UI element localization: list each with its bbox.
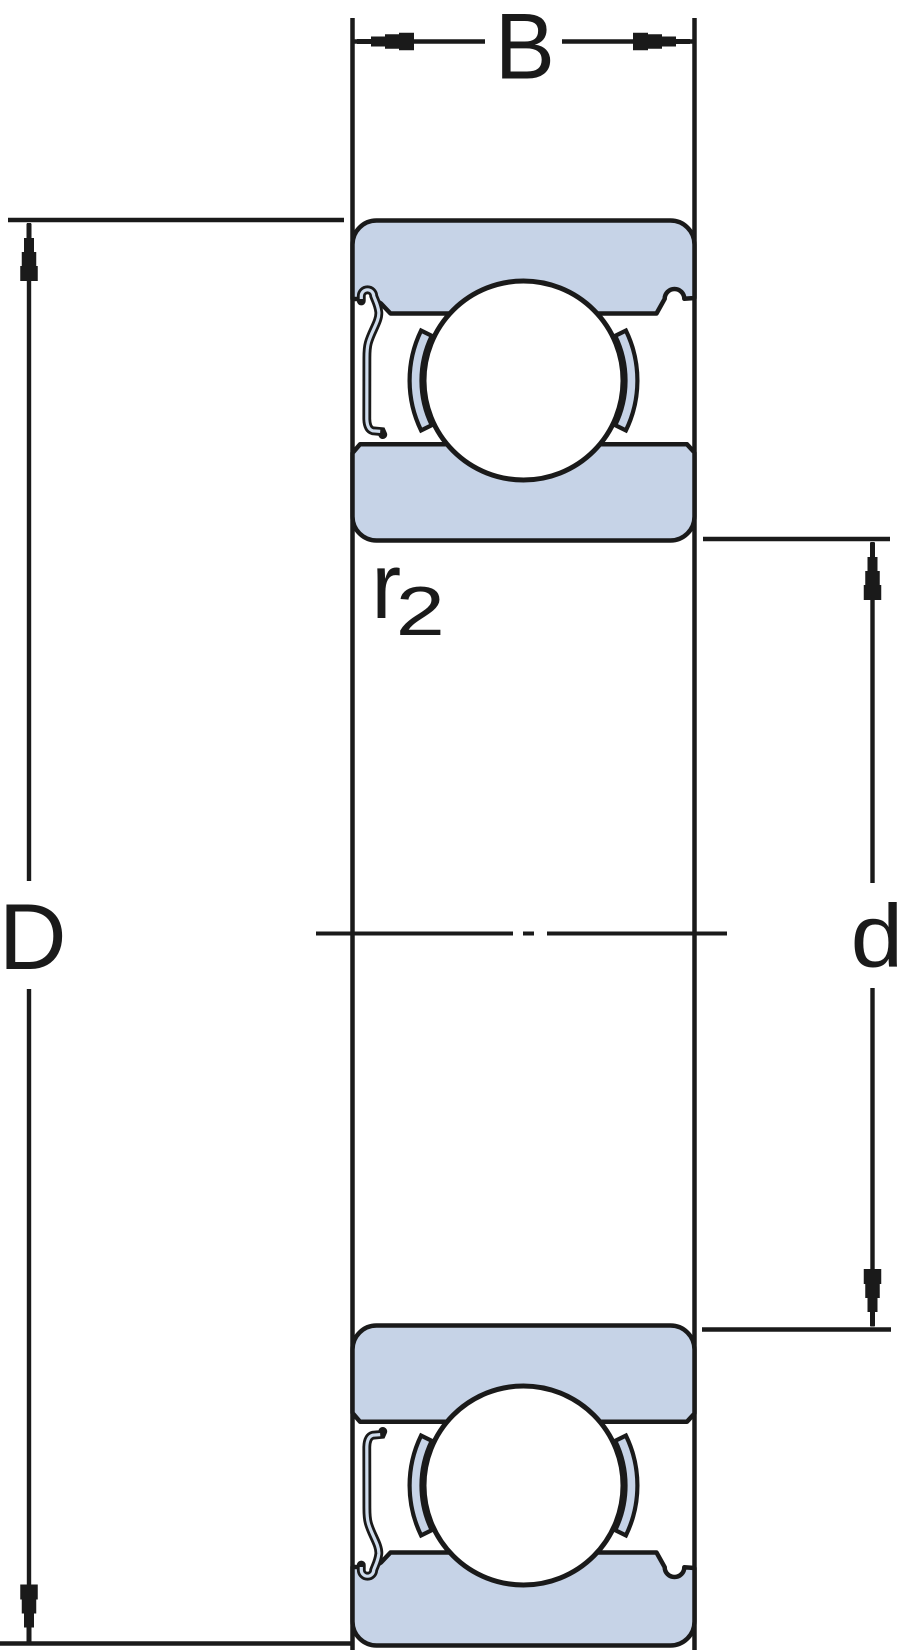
svg-text:d: d (851, 887, 900, 986)
svg-text:B: B (495, 0, 555, 99)
svg-text:D: D (0, 884, 67, 989)
svg-text:2: 2 (396, 572, 445, 650)
